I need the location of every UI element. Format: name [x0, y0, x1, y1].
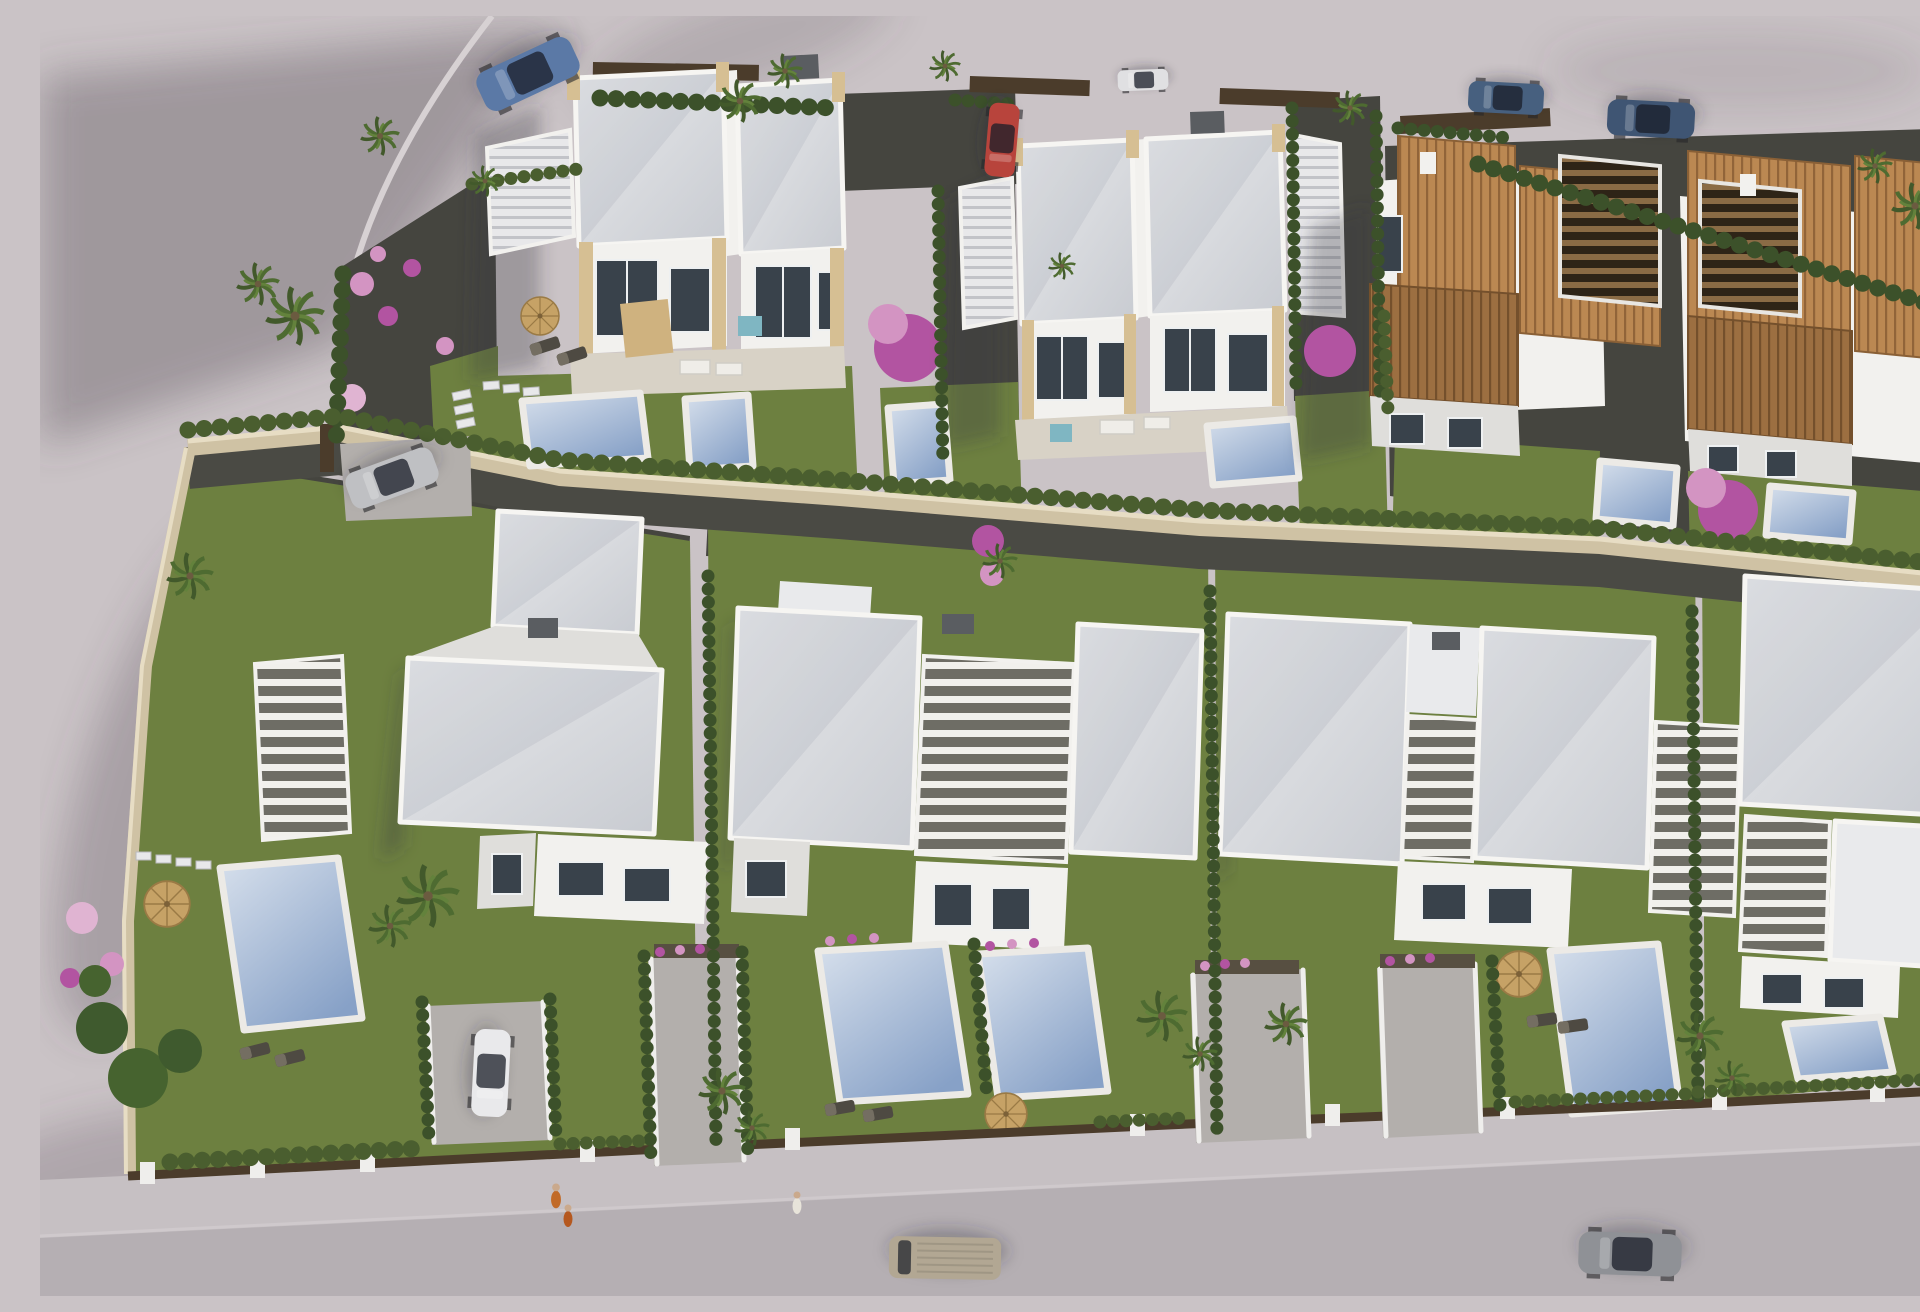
- slatted-pergola: [255, 656, 350, 840]
- lower-left-pool: [220, 858, 362, 1030]
- banana-plant: [76, 1002, 128, 1054]
- beige-van: [888, 1228, 1009, 1280]
- white-compact: [464, 1023, 515, 1117]
- scene-canvas: [40, 16, 1920, 1296]
- bougainvillea: [1304, 325, 1356, 377]
- square-parasol: [620, 299, 673, 358]
- central-pergola: [1402, 716, 1478, 861]
- parasol: [521, 297, 559, 335]
- gray-coupe: [1578, 1223, 1688, 1282]
- pergola-stairs: [1560, 156, 1660, 306]
- white-hatchback: [1117, 65, 1171, 94]
- central-pergola: [916, 656, 1074, 862]
- parasol: [1496, 951, 1542, 997]
- side-pergola: [1740, 816, 1830, 956]
- jacuzzi: [738, 316, 762, 336]
- dark-blue-suv-a: [1467, 75, 1549, 119]
- parasol: [144, 881, 190, 927]
- lower-far-right-villa: [1740, 576, 1920, 1079]
- aerial-render: [40, 16, 1920, 1296]
- pool: [1785, 1017, 1893, 1079]
- dark-blue-suv-b: [1606, 92, 1700, 143]
